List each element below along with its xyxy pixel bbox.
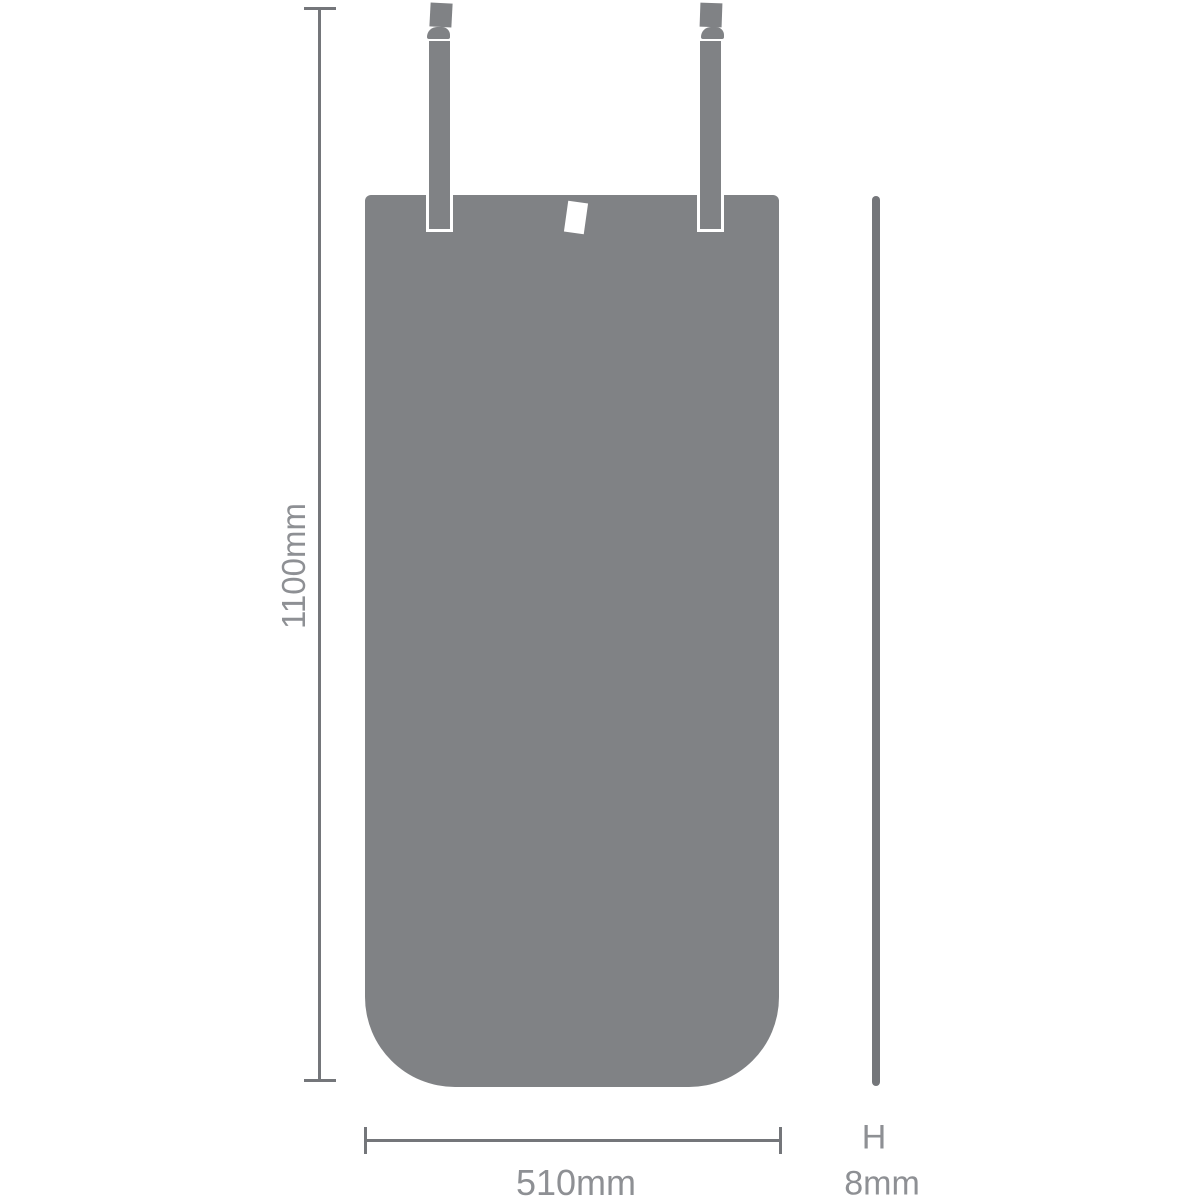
thickness-symbol: H (862, 1119, 887, 1158)
right-strap (697, 41, 724, 232)
left-strap (426, 41, 453, 232)
width-dimension-right-tick (779, 1127, 782, 1154)
width-dimension-label: 510mm (516, 1162, 636, 1200)
product-label-tag (564, 201, 588, 234)
width-dimension-line (365, 1139, 782, 1142)
right-strap-buckle (701, 27, 724, 39)
thickness-indicator-line (872, 196, 880, 1086)
product-dimension-diagram: 1100mm 510mm H 8mm (0, 0, 1200, 1200)
cover-body-silhouette (365, 195, 779, 1087)
thickness-value-label: 8mm (844, 1165, 920, 1200)
height-dimension-bottom-cap (304, 1079, 336, 1082)
height-dimension-line (318, 8, 321, 1081)
height-dimension-label: 1100mm (275, 503, 313, 629)
right-strap-end-tab (700, 3, 723, 28)
left-strap-buckle (427, 27, 450, 39)
left-strap-end-tab (429, 2, 452, 27)
